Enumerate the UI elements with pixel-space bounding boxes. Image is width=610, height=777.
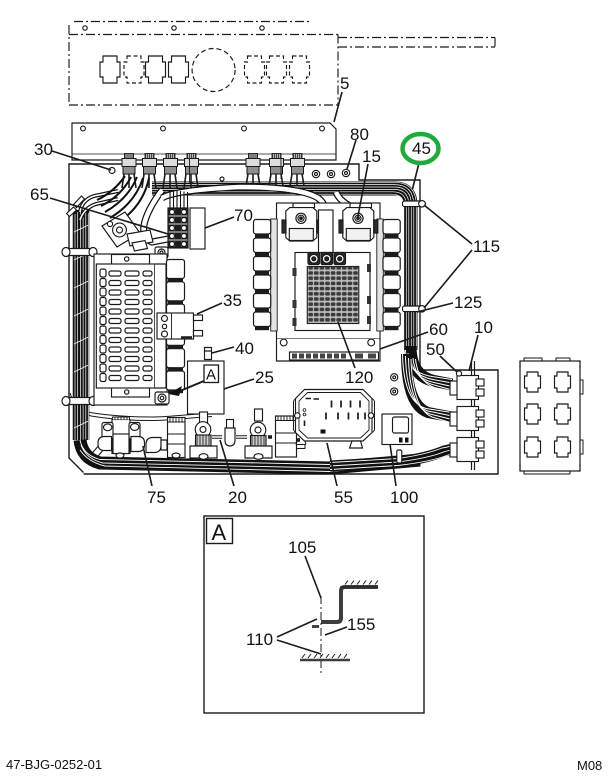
svg-text:35: 35	[223, 291, 242, 310]
svg-text:45: 45	[412, 139, 431, 158]
svg-text:115: 115	[473, 237, 500, 256]
svg-text:65: 65	[30, 185, 49, 204]
svg-text:15: 15	[362, 147, 381, 166]
svg-text:70: 70	[234, 206, 253, 225]
svg-text:A: A	[212, 520, 227, 545]
svg-text:80: 80	[350, 125, 369, 144]
svg-text:A: A	[206, 367, 216, 384]
svg-text:125: 125	[454, 293, 482, 312]
svg-text:50: 50	[426, 340, 445, 359]
svg-text:120: 120	[345, 368, 373, 387]
svg-text:25: 25	[255, 368, 274, 387]
svg-text:30: 30	[34, 140, 53, 159]
svg-text:47-BJG-0252-01: 47-BJG-0252-01	[6, 757, 102, 772]
svg-text:155: 155	[347, 615, 375, 634]
svg-text:60: 60	[429, 320, 448, 339]
svg-text:M08: M08	[577, 758, 602, 773]
svg-text:55: 55	[334, 488, 353, 507]
svg-text:5: 5	[340, 74, 349, 93]
svg-text:75: 75	[147, 488, 166, 507]
svg-text:110: 110	[246, 630, 273, 649]
svg-text:10: 10	[474, 318, 493, 337]
svg-text:20: 20	[228, 488, 247, 507]
svg-text:105: 105	[288, 538, 316, 557]
svg-text:100: 100	[390, 488, 418, 507]
svg-text:40: 40	[235, 339, 254, 358]
